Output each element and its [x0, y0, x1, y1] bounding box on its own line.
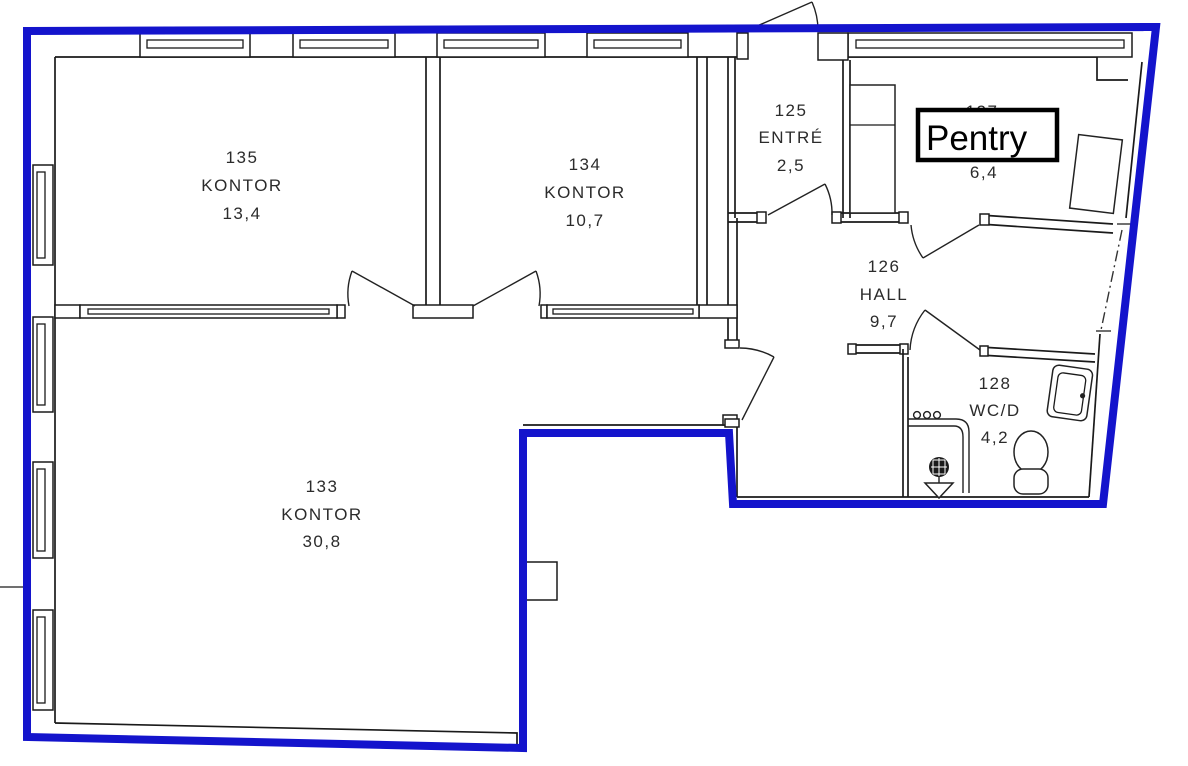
room-area: 10,7	[565, 211, 604, 230]
floor-plan-drawing: 135 KONTOR 13,4 134 KONTOR 10,7 125 ENTR…	[0, 0, 1188, 766]
door-jamb	[737, 33, 748, 59]
room-126-label: 126 HALL 9,7	[860, 257, 909, 331]
room-133-label: 133 KONTOR 30,8	[281, 477, 362, 551]
wall-notch	[523, 562, 557, 600]
room-134-label: 134 KONTOR 10,7	[544, 155, 625, 230]
window	[33, 165, 53, 265]
window	[33, 462, 53, 558]
window	[587, 33, 688, 57]
toilet	[1014, 431, 1048, 494]
door-office-134	[473, 271, 540, 306]
door-entre-hall	[768, 184, 832, 215]
room-area: 9,7	[870, 312, 898, 331]
room-number: 125	[775, 101, 808, 120]
facade-windows-left	[33, 165, 53, 710]
closet	[850, 85, 895, 213]
room-number: 134	[569, 155, 602, 174]
window	[848, 33, 1132, 57]
window	[140, 33, 250, 57]
pentry-overlay-label: Pentry	[926, 119, 1028, 158]
room-name: KONTOR	[281, 505, 362, 524]
curtain-rings-icon	[914, 412, 941, 419]
room-number: 128	[979, 374, 1012, 393]
wc-sink	[1046, 364, 1093, 421]
floor-drain-icon	[925, 457, 953, 498]
shower	[908, 412, 969, 498]
room-number: 126	[868, 257, 901, 276]
facade-windows-top	[140, 33, 1132, 60]
room-135-label: 135 KONTOR 13,4	[201, 148, 282, 223]
room-area: 30,8	[302, 532, 341, 551]
room-127-label: 127 Pentry 6,4	[918, 102, 1057, 182]
room-area: 2,5	[777, 156, 805, 175]
room-name: HALL	[860, 285, 909, 304]
room-number: 133	[306, 477, 339, 496]
floor-plan: 135 KONTOR 13,4 134 KONTOR 10,7 125 ENTR…	[0, 0, 1188, 766]
room-name: ENTRÉ	[758, 128, 823, 147]
door-office-133	[740, 348, 774, 420]
window	[33, 317, 53, 412]
door-jamb	[818, 33, 848, 60]
door-wc	[910, 310, 980, 350]
room-area: 6,4	[970, 163, 998, 182]
fridge	[1070, 135, 1123, 214]
window	[293, 33, 395, 57]
glazed-partition	[80, 305, 699, 318]
room-125-label: 125 ENTRÉ 2,5	[758, 101, 823, 175]
room-name: KONTOR	[201, 176, 282, 195]
room-number: 135	[226, 148, 259, 167]
room-name: KONTOR	[544, 183, 625, 202]
window	[33, 610, 53, 710]
room-128-label: 128 WC/D 4,2	[969, 374, 1020, 447]
room-area: 13,4	[222, 204, 261, 223]
room-area: 4,2	[981, 428, 1009, 447]
door-pentry-hall	[911, 225, 979, 258]
room-name: WC/D	[969, 401, 1020, 420]
window	[437, 33, 545, 57]
door-office-135	[348, 271, 415, 306]
